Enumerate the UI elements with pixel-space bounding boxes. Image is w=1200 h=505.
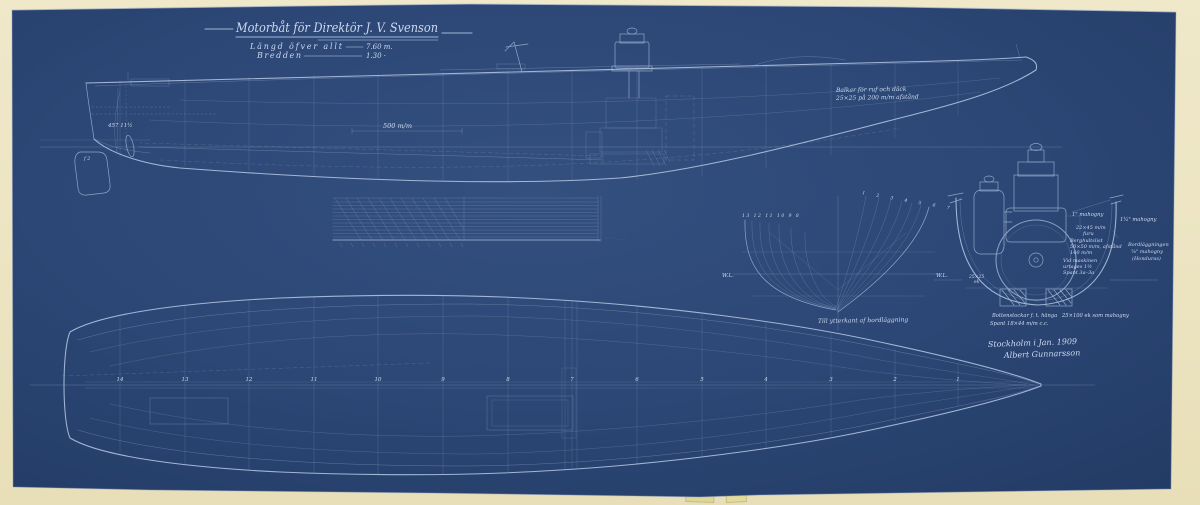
beam-value: 1.30 · — [366, 52, 386, 60]
midship-dimension-label: 500 m/m — [383, 122, 412, 130]
note-clamp-2: 50×50 m/m, afstånd — [1070, 243, 1122, 250]
station-number: 13 — [182, 377, 189, 383]
blueprint-sheet — [12, 4, 1176, 497]
drawing-title: Motorbåt för Direktör J. V. Svenson — [235, 20, 438, 36]
station-number: 8 — [506, 377, 510, 383]
station-number: 11 — [311, 377, 318, 383]
wl-label-left: W.L. — [722, 273, 734, 279]
station-number: 12 — [246, 377, 253, 383]
aft-station-numbers: 13 12 11 10 9 8 — [742, 213, 800, 219]
note-engine-3: Spant 3a–3a — [1063, 270, 1094, 276]
note-floors-2: 25×100 ek som mahogny — [1061, 313, 1129, 319]
deck-beam-note-line2: 25×25 på 200 m/m afstånd — [835, 94, 919, 102]
station-number: 2 — [892, 377, 897, 383]
note-keel-2: ek — [974, 279, 980, 285]
blueprint-canvas: Motorbåt för Direktör J. V. Svenson Läng… — [0, 0, 1200, 505]
note-clamp-3: 140 m/m — [1070, 250, 1093, 256]
note-deck: 1" mahogny — [1072, 212, 1103, 218]
wl-label-right: W.L. — [936, 273, 948, 279]
rudder-note: f 2 — [83, 156, 90, 162]
station-number: 4 — [763, 377, 768, 383]
station-number: 5 — [700, 377, 704, 383]
note-planking-right: 1¼" mahogny — [1120, 216, 1157, 223]
scanned-blueprint-photo: Motorbåt för Direktör J. V. Svenson Läng… — [0, 0, 1200, 505]
station-number: 7 — [570, 377, 574, 383]
note-hull-1: Bordläggningen — [1127, 242, 1169, 248]
note-beams-2: furu — [1082, 231, 1094, 237]
sheet-edge — [12, 4, 1176, 497]
station-number: 10 — [375, 377, 382, 383]
note-engine-2: urtages 1½ — [1063, 263, 1092, 270]
note-frames: Spant 18×44 m/m c.c. — [990, 321, 1049, 327]
deck-beam-note-line1: Balkar för ruf och däck — [835, 86, 907, 94]
stern-note: 457 11½ — [107, 122, 133, 129]
station-number: 1 — [956, 377, 960, 383]
station-number: 14 — [117, 377, 124, 383]
note-floors-1: Bottenstockar f. t. hänga — [991, 313, 1057, 319]
loa-value: 7.60 m. — [366, 43, 393, 51]
beam-label: Bredden — [256, 51, 301, 60]
station-number: 9 — [441, 377, 445, 383]
note-hull-2: ⅝" mahogny — [1131, 249, 1163, 255]
note-hull-3: (Honduras) — [1132, 255, 1161, 262]
station-number: 6 — [635, 377, 639, 383]
station-number: 3 — [829, 377, 833, 383]
